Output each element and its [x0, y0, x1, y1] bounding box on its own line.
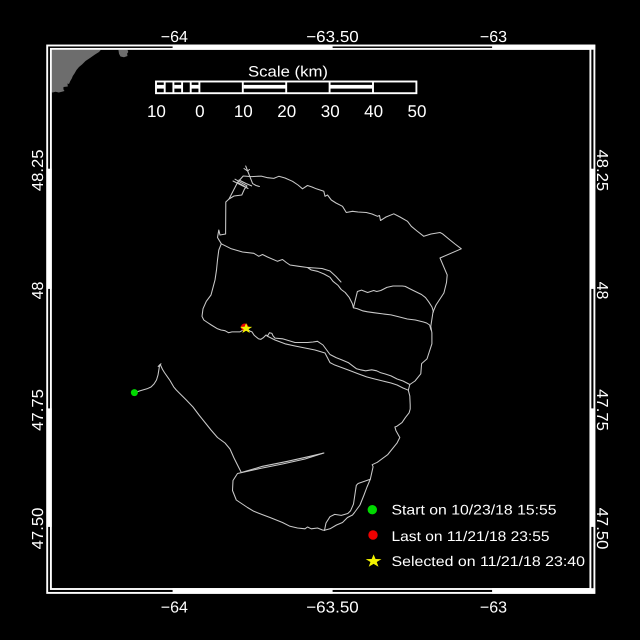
- svg-text:Start on 10/23/18 15:55: Start on 10/23/18 15:55: [392, 502, 557, 518]
- svg-text:Scale (km): Scale (km): [248, 64, 328, 81]
- svg-text:−63: −63: [480, 29, 507, 46]
- svg-text:−64: −64: [161, 29, 188, 46]
- svg-text:48.25: 48.25: [593, 149, 610, 191]
- svg-text:50: 50: [408, 102, 427, 121]
- svg-text:30: 30: [321, 102, 340, 121]
- svg-text:Last on 11/21/18 23:55: Last on 11/21/18 23:55: [392, 528, 550, 544]
- svg-text:47.75: 47.75: [593, 389, 610, 431]
- svg-text:47.50: 47.50: [593, 508, 610, 550]
- svg-text:−63: −63: [480, 599, 507, 616]
- svg-text:Selected on 11/21/18 23:40: Selected on 11/21/18 23:40: [392, 553, 586, 569]
- svg-text:−63.50: −63.50: [306, 29, 359, 46]
- svg-text:−64: −64: [161, 599, 188, 616]
- svg-text:48: 48: [593, 282, 610, 300]
- svg-text:0: 0: [195, 102, 204, 121]
- svg-text:20: 20: [277, 102, 296, 121]
- svg-text:10: 10: [147, 102, 166, 121]
- svg-text:40: 40: [364, 102, 383, 121]
- svg-text:48.25: 48.25: [30, 149, 47, 191]
- svg-text:47.50: 47.50: [30, 508, 47, 550]
- svg-text:48: 48: [30, 282, 47, 300]
- svg-text:−63.50: −63.50: [306, 599, 359, 616]
- svg-text:47.75: 47.75: [30, 389, 47, 431]
- svg-text:10: 10: [234, 102, 253, 121]
